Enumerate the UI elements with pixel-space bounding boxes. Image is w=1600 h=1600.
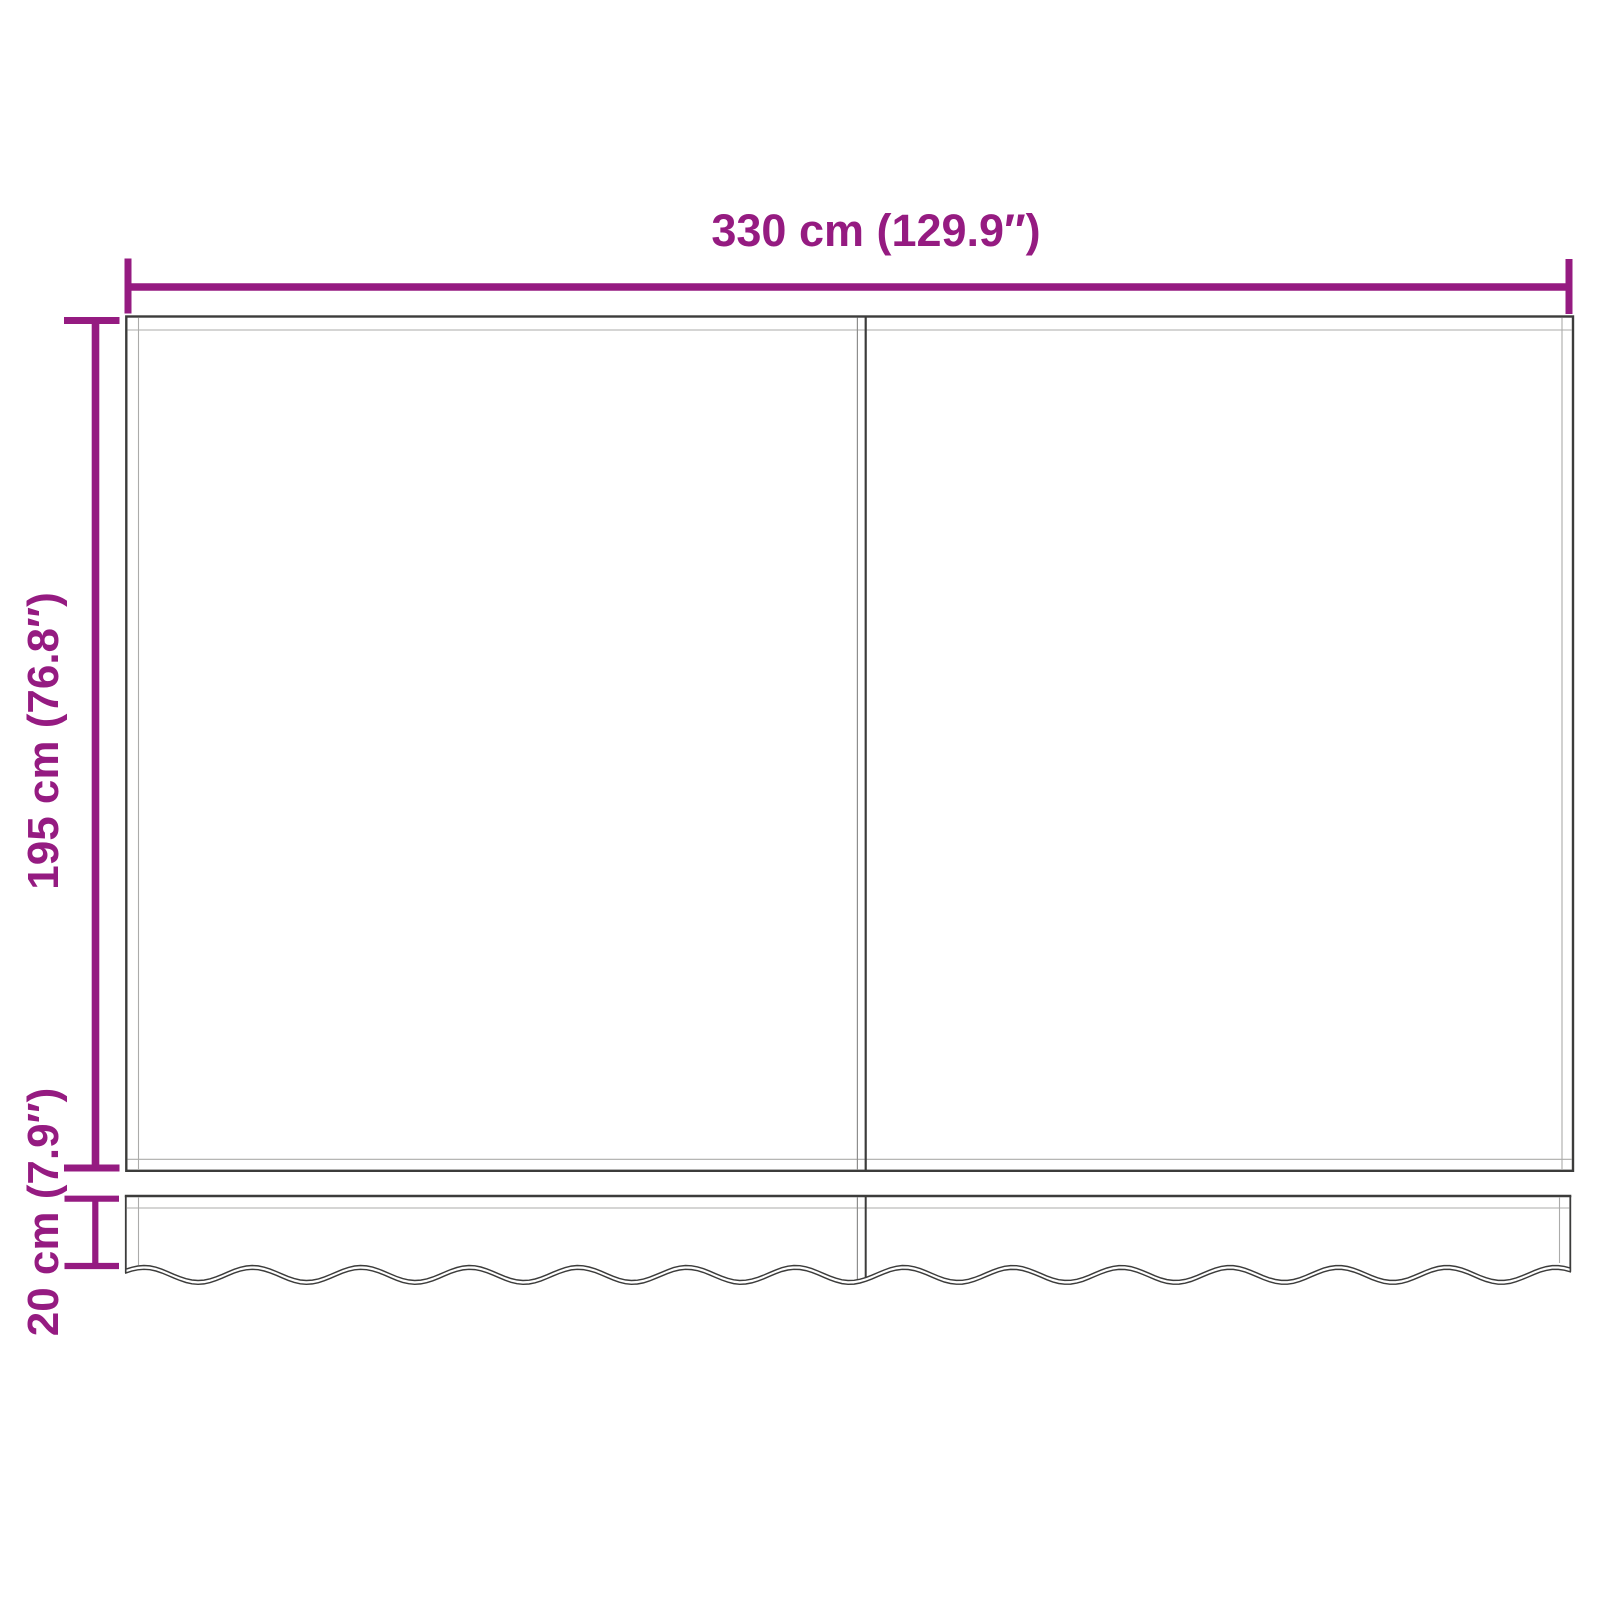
svg-text:195 cm (76.8″): 195 cm (76.8″) — [19, 592, 68, 889]
svg-text:330 cm (129.9″): 330 cm (129.9″) — [711, 205, 1040, 256]
svg-text:20 cm (7.9″): 20 cm (7.9″) — [19, 1088, 68, 1337]
